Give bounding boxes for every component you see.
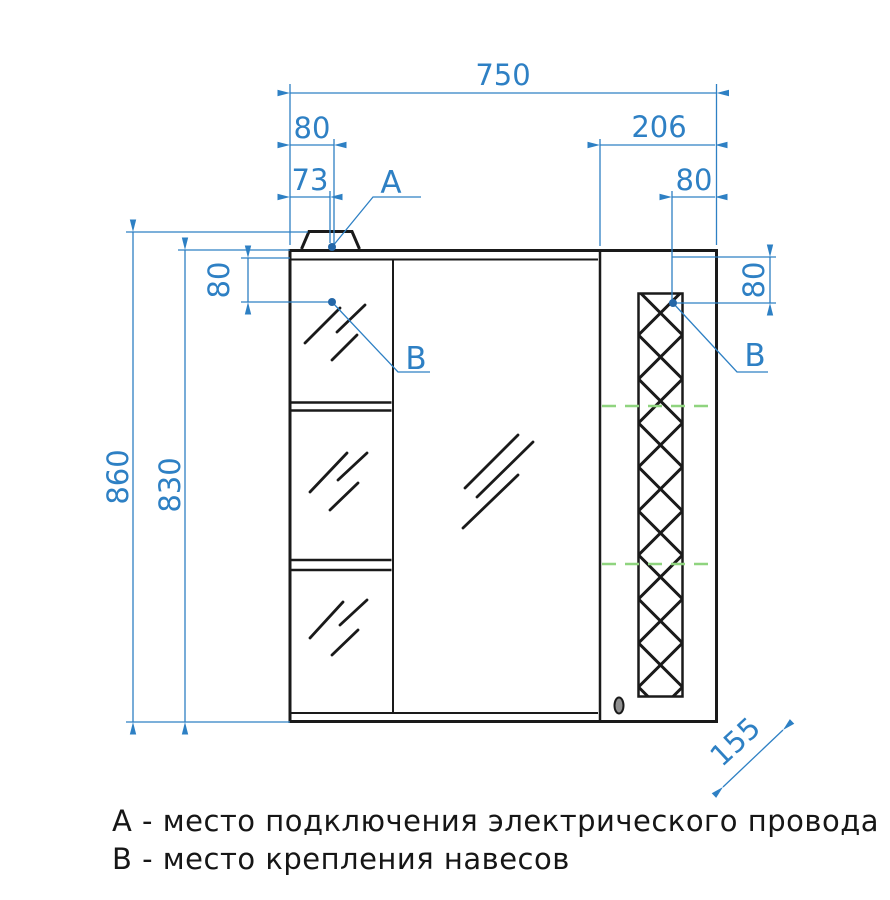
dim-body-height: 830 bbox=[153, 250, 187, 722]
shelf-divider-2 bbox=[292, 560, 392, 570]
cabinet-body bbox=[290, 232, 717, 722]
dim-wire-offset-inner-value: 73 bbox=[292, 163, 329, 197]
dim-right-section-width-value: 206 bbox=[631, 110, 686, 144]
dim-left-bracket-drop-value: 80 bbox=[202, 262, 236, 299]
dim-right-bracket-drop-value: 80 bbox=[737, 262, 771, 299]
shelf-divider-1 bbox=[292, 403, 392, 411]
legend: А - место подключения электрического про… bbox=[112, 804, 879, 876]
drawing-canvas: 750 80 73 206 80 860 830 80 80 155 А bbox=[0, 0, 890, 900]
dim-wire-offset-outer-value: 80 bbox=[294, 111, 331, 145]
mirror-glints-left-middle bbox=[310, 453, 367, 510]
dim-right-bracket-offset: 80 bbox=[672, 163, 715, 197]
point-a-leader: А bbox=[328, 165, 421, 251]
decor-lattice-strip bbox=[639, 294, 683, 697]
mirror-glints-center bbox=[463, 435, 533, 528]
legend-line-b: В - место крепления навесов bbox=[112, 842, 570, 876]
dim-overall-width-value: 750 bbox=[475, 58, 530, 92]
mirror-glints-left-bottom bbox=[310, 600, 367, 655]
point-b-right-label: В bbox=[744, 338, 765, 374]
legend-line-a: А - место подключения электрического про… bbox=[112, 804, 879, 838]
dim-right-bracket-offset-value: 80 bbox=[676, 163, 713, 197]
dim-right-section-width: 206 bbox=[600, 110, 715, 145]
dim-left-bracket-drop: 80 bbox=[202, 258, 248, 302]
point-b-left-label: В bbox=[405, 341, 426, 377]
point-b-left-leader: В bbox=[328, 298, 430, 377]
dim-wire-offset-inner: 73 bbox=[290, 163, 330, 197]
dim-overall-height-value: 860 bbox=[101, 449, 135, 504]
dim-body-height-value: 830 bbox=[153, 457, 187, 512]
point-b-right-leader: В bbox=[669, 299, 768, 374]
dim-overall-height: 860 bbox=[101, 232, 135, 722]
technical-drawing: 750 80 73 206 80 860 830 80 80 155 А bbox=[0, 0, 890, 900]
dim-wire-offset-outer: 80 bbox=[290, 111, 334, 145]
point-b-left-marker bbox=[328, 298, 336, 306]
point-a-label: А bbox=[380, 165, 401, 201]
point-b-right-marker bbox=[669, 299, 677, 307]
dim-right-bracket-drop: 80 bbox=[737, 257, 771, 303]
door-handle bbox=[615, 698, 624, 714]
point-a-marker bbox=[328, 243, 336, 251]
dim-depth-value: 155 bbox=[703, 710, 767, 773]
mirror-glints-left-top bbox=[305, 305, 365, 360]
dim-overall-width: 750 bbox=[290, 58, 717, 93]
